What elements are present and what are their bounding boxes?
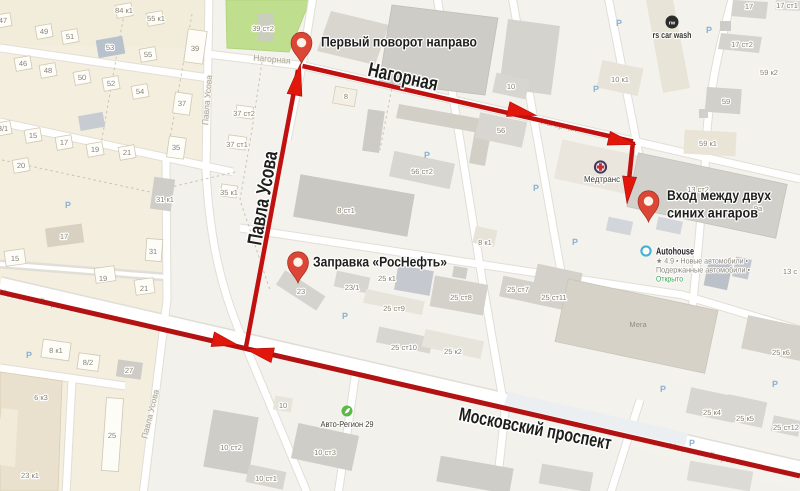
svg-text:31 к1: 31 к1 [156, 195, 174, 204]
svg-text:P: P [660, 384, 666, 394]
svg-text:59 к1: 59 к1 [699, 139, 717, 148]
svg-text:25 ст10: 25 ст10 [391, 343, 417, 352]
svg-text:17: 17 [60, 138, 68, 147]
svg-text:10 ст1: 10 ст1 [255, 474, 277, 483]
svg-text:25 к1: 25 к1 [378, 274, 396, 283]
svg-text:35: 35 [172, 143, 180, 152]
svg-text:Заправка «РосНефть»: Заправка «РосНефть» [313, 254, 447, 270]
svg-text:46: 46 [19, 59, 27, 68]
svg-text:Подержанные автомобили •: Подержанные автомобили • [656, 266, 750, 275]
svg-text:rw: rw [669, 21, 676, 27]
svg-text:P: P [424, 150, 430, 160]
svg-text:27: 27 [125, 366, 133, 375]
svg-text:37 ст2: 37 ст2 [233, 109, 255, 118]
svg-text:52: 52 [107, 79, 115, 88]
svg-text:Вход между двух: Вход между двух [667, 187, 771, 203]
svg-text:39 ст2: 39 ст2 [252, 24, 274, 33]
svg-text:47: 47 [0, 16, 7, 25]
svg-text:Открыто: Открыто [656, 275, 683, 284]
svg-text:P: P [342, 311, 348, 321]
svg-text:25 ст8: 25 ст8 [450, 293, 472, 302]
svg-text:Медтранс: Медтранс [584, 174, 621, 184]
svg-text:15: 15 [29, 131, 37, 140]
svg-text:17 ст1: 17 ст1 [776, 1, 798, 10]
svg-text:13 с: 13 с [783, 267, 797, 276]
svg-text:35 к1: 35 к1 [220, 188, 238, 197]
svg-text:17: 17 [60, 232, 68, 241]
svg-text:55: 55 [144, 50, 152, 59]
svg-text:10: 10 [507, 82, 515, 91]
svg-text:56 ст2: 56 ст2 [411, 167, 433, 176]
svg-text:37 ст1: 37 ст1 [226, 140, 248, 149]
svg-text:23 к1: 23 к1 [21, 471, 39, 480]
svg-text:P: P [616, 18, 622, 28]
svg-text:25 ст11: 25 ст11 [541, 293, 566, 302]
svg-text:31: 31 [149, 247, 157, 256]
svg-text:10 ст2: 10 ст2 [220, 443, 242, 452]
svg-text:17: 17 [745, 2, 753, 11]
svg-text:25 к6: 25 к6 [772, 348, 790, 357]
svg-text:3/1: 3/1 [0, 124, 8, 133]
svg-text:25 ст7: 25 ст7 [507, 285, 529, 294]
svg-text:25 ст9: 25 ст9 [383, 304, 405, 313]
svg-text:50: 50 [78, 73, 86, 82]
svg-text:25 ст12: 25 ст12 [773, 423, 799, 432]
svg-text:rs car wash: rs car wash [653, 30, 692, 40]
svg-text:P: P [706, 25, 712, 35]
svg-text:59 к2: 59 к2 [760, 68, 778, 77]
svg-text:Первый поворот направо: Первый поворот направо [321, 34, 477, 50]
svg-text:55 к1: 55 к1 [147, 14, 165, 23]
svg-text:25: 25 [108, 431, 116, 440]
svg-text:★ 4.9 • Новые автомобили •: ★ 4.9 • Новые автомобили • [656, 257, 748, 266]
svg-text:25 к4: 25 к4 [703, 408, 721, 417]
svg-text:48: 48 [44, 66, 52, 75]
svg-text:25 к5: 25 к5 [736, 414, 754, 423]
svg-text:54: 54 [136, 87, 144, 96]
svg-text:53: 53 [106, 43, 114, 52]
svg-text:синих ангаров: синих ангаров [667, 205, 758, 221]
svg-text:20: 20 [17, 161, 25, 170]
svg-text:P: P [65, 200, 71, 210]
svg-text:P: P [26, 350, 32, 360]
svg-text:8 ст1: 8 ст1 [337, 206, 355, 215]
svg-text:8: 8 [344, 92, 348, 101]
svg-text:15: 15 [11, 254, 19, 263]
svg-text:59: 59 [722, 97, 730, 106]
svg-text:84 к1: 84 к1 [115, 6, 133, 15]
svg-text:51: 51 [66, 32, 74, 41]
svg-text:23/1: 23/1 [345, 283, 360, 292]
svg-text:8/2: 8/2 [83, 358, 93, 367]
svg-text:8 к1: 8 к1 [49, 346, 63, 355]
svg-text:6 к3: 6 к3 [34, 393, 48, 402]
svg-text:P: P [593, 84, 599, 94]
svg-text:39: 39 [191, 44, 199, 53]
svg-text:P: P [772, 379, 778, 389]
svg-text:56: 56 [497, 126, 505, 135]
svg-text:10 к1: 10 к1 [611, 75, 629, 84]
svg-text:P: P [533, 183, 539, 193]
svg-text:19: 19 [91, 145, 99, 154]
svg-text:49: 49 [40, 27, 48, 36]
svg-text:25 к2: 25 к2 [444, 347, 462, 356]
svg-text:21: 21 [140, 284, 148, 293]
svg-text:37: 37 [178, 99, 186, 108]
svg-text:19: 19 [99, 274, 107, 283]
svg-text:8 к1: 8 к1 [478, 238, 492, 247]
svg-text:Мега: Мега [629, 320, 647, 329]
svg-text:Авто-Регион 29: Авто-Регион 29 [321, 419, 374, 429]
svg-text:10: 10 [279, 401, 287, 410]
svg-text:21: 21 [123, 148, 131, 157]
svg-text:23: 23 [297, 287, 305, 296]
svg-text:P: P [572, 237, 578, 247]
svg-text:10 ст3: 10 ст3 [314, 448, 336, 457]
svg-text:17 ст2: 17 ст2 [731, 40, 753, 49]
